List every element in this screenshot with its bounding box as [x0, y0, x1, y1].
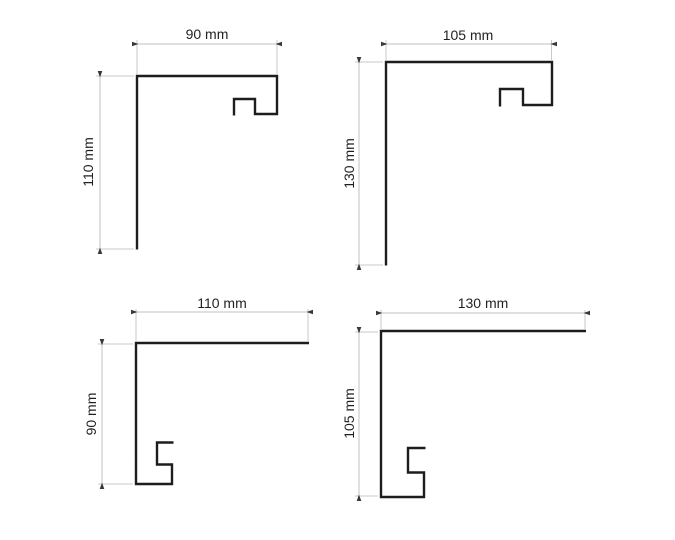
height-dimension-label: 110 mm [80, 137, 96, 187]
profile-outline [381, 331, 586, 497]
height-dimension-label: 90 mm [83, 393, 99, 436]
height-dimension-label: 130 mm [341, 138, 357, 189]
profile-top-left: 90 mm 110 mm [80, 26, 277, 250]
profile-outline [386, 62, 552, 266]
height-dimension-label: 105 mm [341, 388, 357, 439]
width-dimension-label: 105 mm [443, 27, 494, 43]
profile-diagram-canvas: 90 mm 110 mm 105 mm 130 mm 110 mm 90 mm [0, 0, 675, 540]
width-dimension-label: 130 mm [458, 295, 509, 311]
width-dimension-label: 90 mm [186, 26, 229, 42]
profile-bottom-right: 130 mm 105 mm [341, 295, 586, 497]
profile-outline [137, 76, 277, 250]
profile-top-right: 105 mm 130 mm [341, 27, 552, 266]
profile-bottom-left: 110 mm 90 mm [83, 295, 309, 484]
width-dimension-label: 110 mm [197, 295, 247, 311]
profile-diagram-svg: 90 mm 110 mm 105 mm 130 mm 110 mm 90 mm [0, 0, 675, 540]
profile-outline [136, 343, 309, 484]
